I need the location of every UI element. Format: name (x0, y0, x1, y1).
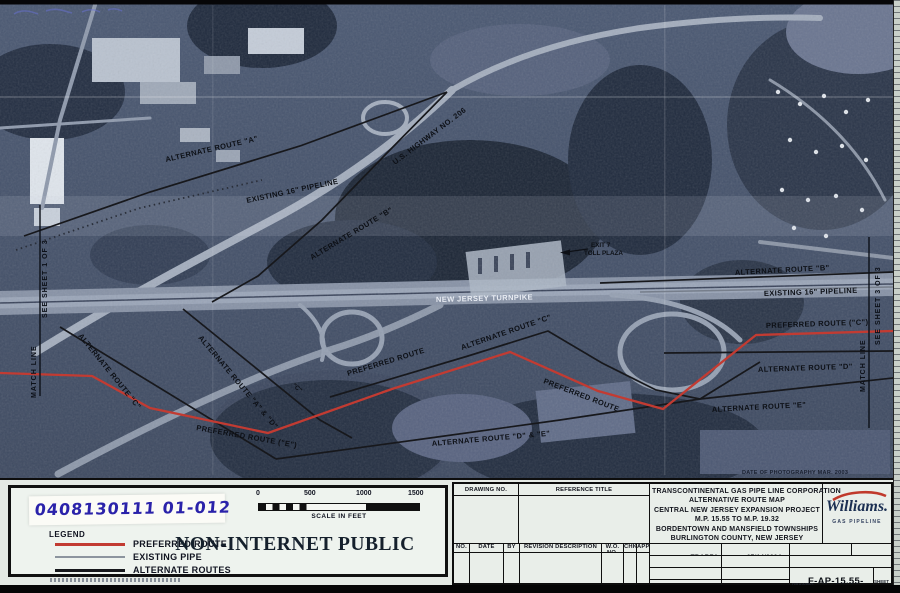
rev-col-date: DATE (470, 544, 504, 553)
existing-pipe-swatch (55, 556, 125, 558)
sheet-cell: SHEET 2 (874, 568, 891, 586)
title-block: DRAWING NO. REFERENCE TITLE NO. DATE BY … (452, 482, 893, 585)
rev-col-no: NO. (454, 544, 470, 553)
date1-cell: DATE: 07/14/2004 (722, 544, 790, 556)
label-see-sheet-left: SEE SHEET 1 OF 3 (42, 239, 49, 318)
scale-bar-graphic (258, 503, 420, 511)
reference-title-header: REFERENCE TITLE (519, 484, 650, 496)
scale-caption: SCALE IN FEET (258, 513, 420, 520)
label-photo-date: DATE OF PHOTOGRAPHY MAR. 2003 (742, 470, 848, 476)
scan-edge-strip (893, 0, 900, 593)
williams-swoosh-icon (829, 490, 889, 502)
label-match-line-left: MATCH LINE (31, 345, 38, 398)
williams-logo: Williams. GAS PIPELINE (823, 484, 891, 540)
label-match-line-right: MATCH LINE (860, 339, 867, 392)
scan-bottom-edge (0, 585, 900, 593)
date2-cell: DATE: (722, 556, 790, 568)
scale-ticks: 0 500 1000 1500 (258, 490, 420, 499)
rev-col-app: APP (637, 544, 650, 553)
scale-cell: SCALE: SHOWN (852, 544, 891, 556)
legend-box: 0408130111 01-012 LEGEND PREFERRED ROUTE… (8, 485, 448, 577)
handwritten-id: 0408130111 01-012 (28, 494, 226, 520)
scan-top-edge (0, 0, 893, 5)
aerial-photo: ALTERNATE ROUTE "A" EXISTING 16" PIPELIN… (0, 0, 893, 478)
label-exit7: EXIT 7 (591, 242, 611, 249)
classification-stamp: NON-INTERNET PUBLIC (161, 534, 429, 556)
rev-col-chk: CHK (624, 544, 637, 553)
preferred-route-swatch (55, 543, 125, 546)
issued-for-bid-cell: ISSUED FOR BID (790, 544, 852, 556)
alternate-route-swatch (55, 569, 125, 572)
drawn-by-cell: DRAWN BY: TBARZA (650, 544, 722, 556)
sheet-footer: 0408130111 01-012 LEGEND PREFERRED ROUTE… (0, 478, 900, 585)
label-see-sheet-right: SEE SHEET 3 OF 3 (875, 266, 882, 345)
scanned-map-sheet: ALTERNATE ROUTE "A" EXISTING 16" PIPELIN… (0, 0, 900, 593)
rev-col-desc: REVISION DESCRIPTION (520, 544, 602, 553)
drawing-no-header: DRAWING NO. (454, 484, 519, 496)
rev-col-wo: W.O. NO. (602, 544, 624, 553)
company-title-lines: TRANSCONTINENTAL GAS PIPE LINE CORPORATI… (652, 487, 822, 543)
scale-bar: 0 500 1000 1500 SCALE IN FEET (258, 490, 420, 520)
handwritten-id-sticker: 0408130111 01-012 (29, 494, 225, 526)
drawing-no-box (454, 496, 519, 544)
issued-for-construction-cell: ISSUED FOR CONSTRUCTION (790, 556, 891, 568)
date3-cell: DATE: (722, 568, 790, 580)
checked-by-cell: CHECKED BY: (650, 556, 722, 568)
reference-title-box (519, 496, 650, 544)
approved-by-cell: APPROVED BY: (650, 568, 722, 580)
legend-item-alternate: ALTERNATE ROUTES (55, 564, 231, 576)
fine-print (50, 578, 182, 582)
label-toll-plaza: TOLL PLAZA (584, 250, 623, 257)
rev-col-by: BY (504, 544, 520, 553)
